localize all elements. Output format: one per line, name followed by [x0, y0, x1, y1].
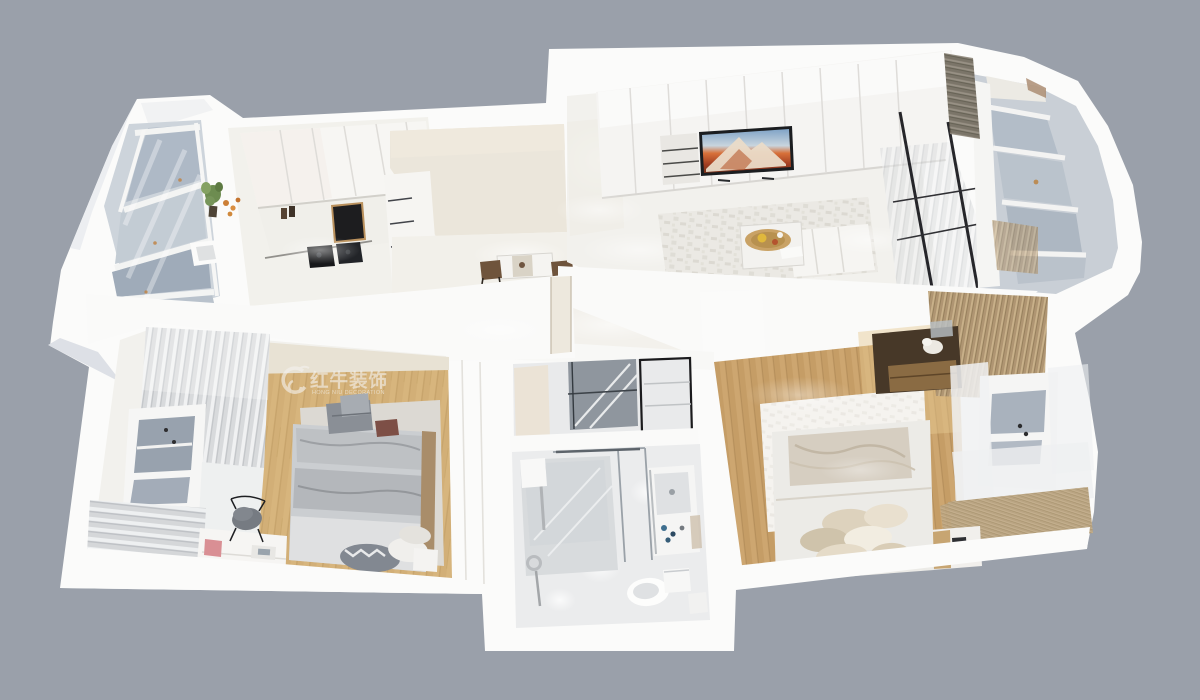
svg-text:红牛装饰: 红牛装饰 [310, 370, 388, 391]
svg-text:HONG NIU DECORATION: HONG NIU DECORATION [312, 390, 385, 396]
